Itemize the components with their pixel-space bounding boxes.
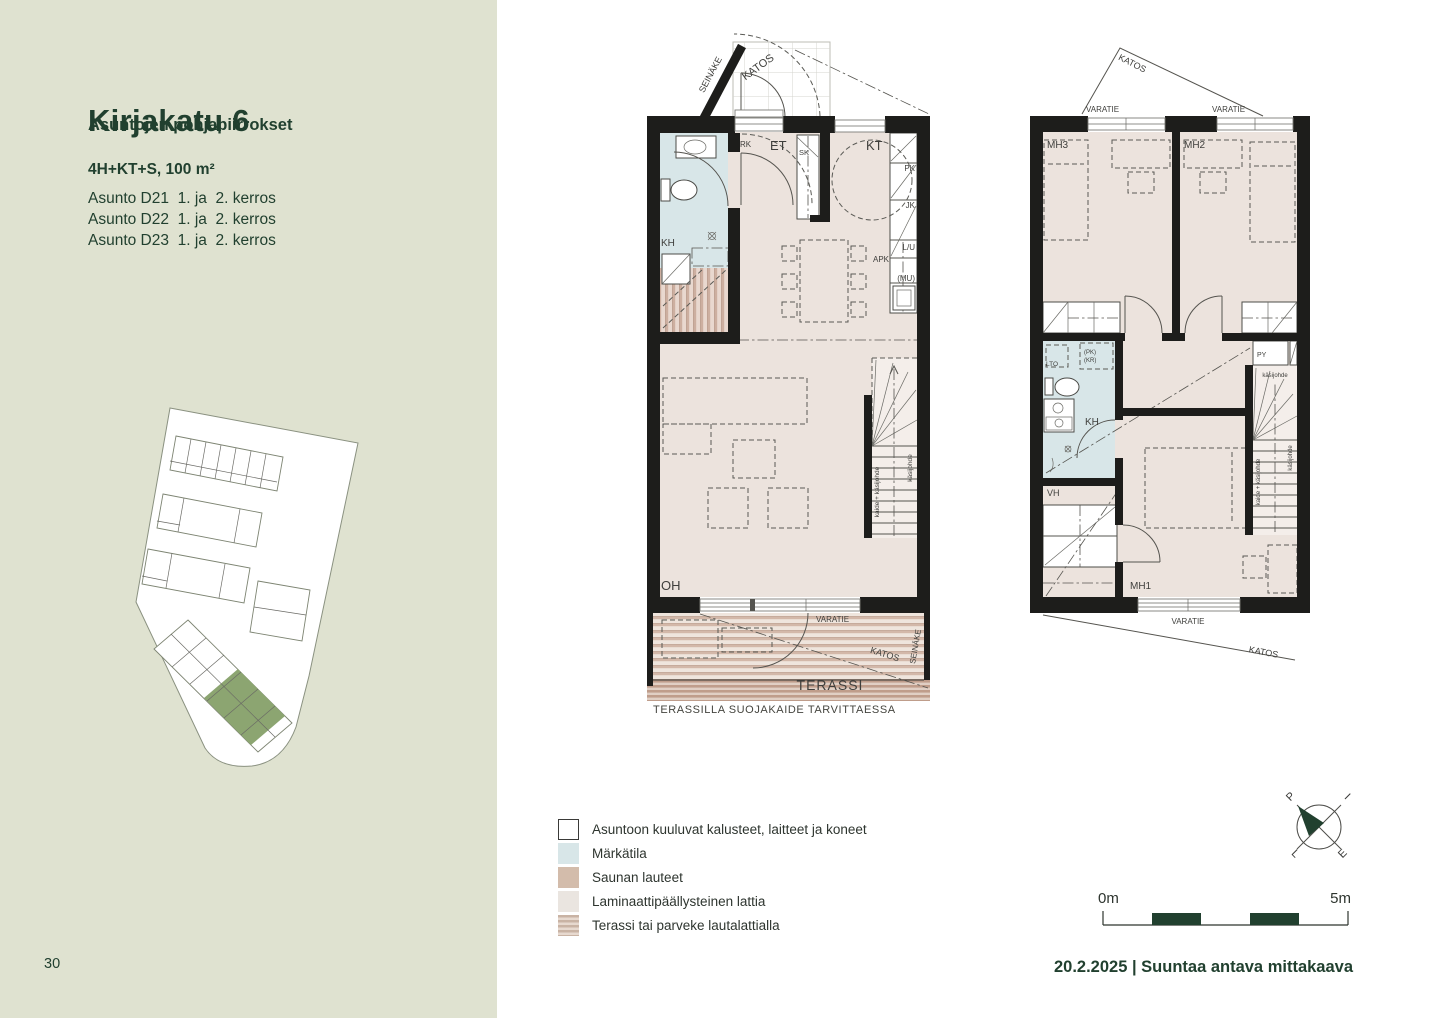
stove <box>893 286 915 310</box>
roof-outline: KATOS VARATIE VARATIE <box>1082 48 1263 116</box>
scale-end-label: 5m <box>1330 890 1351 907</box>
roof-outline-bottom: VARATIE KATOS <box>1043 615 1295 660</box>
varatie-label: VARATIE <box>816 615 849 624</box>
apartment-line: Asunto D23 1. ja 2. kerros <box>88 230 276 251</box>
legend-label: Asuntoon kuuluvat kalusteet, laitteet ja… <box>592 822 867 837</box>
terassi-label: TERASSI <box>797 677 864 693</box>
page-subtitle: Asuntojen pohjapiirrokset <box>88 116 292 135</box>
toilet-tank <box>661 179 670 201</box>
legend-swatch-wetroom <box>558 843 579 864</box>
scale-segment <box>1250 913 1299 925</box>
terrace-caption: TERASSILLA SUOJAKAIDE TARVITTAESSA <box>653 704 896 716</box>
pk-label: (PK) <box>1084 350 1096 356</box>
compass-east-label: I <box>1342 792 1353 803</box>
kasijohde-label: käsijohde <box>1262 373 1288 379</box>
apartment-list: Asunto D21 1. ja 2. kerros Asunto D22 1.… <box>88 188 276 251</box>
legend-item: Laminaattipäällysteinen lattia <box>558 889 867 913</box>
legend-label: Laminaattipäällysteinen lattia <box>592 894 765 909</box>
kh-label: KH <box>1085 417 1099 428</box>
kh-label: KH <box>661 238 675 249</box>
toilet-tank <box>1045 378 1053 395</box>
compass-rose: P I L E <box>1283 786 1355 864</box>
closet <box>1043 302 1120 333</box>
rk-label: RK <box>740 140 752 149</box>
site-plan-map <box>128 400 376 785</box>
apartment-line: Asunto D21 1. ja 2. kerros <box>88 188 276 209</box>
closet <box>1242 302 1297 333</box>
floorplan-second-floor: KATOS VARATIE VARATIE MH3 MH2 <box>1020 40 1320 668</box>
toilet <box>1055 378 1079 396</box>
legend-item: Terassi tai parveke lautalattialla <box>558 913 867 937</box>
legend-label: Saunan lauteet <box>592 870 683 885</box>
sink <box>676 136 716 158</box>
jk-label: JK <box>906 201 916 210</box>
legend: Asuntoon kuuluvat kalusteet, laitteet ja… <box>558 817 867 937</box>
oh-label: OH <box>661 578 681 593</box>
varatie-label: VARATIE <box>1212 105 1245 114</box>
lto-label: LTO <box>1046 361 1058 368</box>
apartment-line: Asunto D22 1. ja 2. kerros <box>88 209 276 230</box>
legend-item: Saunan lauteet <box>558 865 867 889</box>
scale-bar: 0m 5m <box>1093 888 1358 934</box>
legend-item: Asuntoon kuuluvat kalusteet, laitteet ja… <box>558 817 867 841</box>
sk-label: SK <box>799 148 809 157</box>
site-building-4 <box>250 581 310 641</box>
date-line: 20.2.2025 | Suuntaa antava mittakaava <box>1054 958 1353 977</box>
katos-label: KATOS <box>1248 644 1279 659</box>
terrace: VARATIE TERASSI KATOS SEINÄKE <box>647 613 930 701</box>
compass-north-label: P <box>1284 790 1298 804</box>
toilet <box>671 180 697 200</box>
py-label: PY <box>1257 352 1267 359</box>
floorplan-first-floor: SEINÄKE KATOS VARATIE TERASSI KATOS SEIN… <box>640 28 940 720</box>
mu-label: (MU) <box>897 274 915 283</box>
mh1-label: MH1 <box>1130 581 1152 592</box>
kr-label: (KR) <box>1084 358 1096 364</box>
legend-swatch-furniture <box>558 819 579 840</box>
legend-swatch-sauna <box>558 867 579 888</box>
kt-label: KT <box>866 138 883 153</box>
vh-label: VH <box>1047 488 1060 498</box>
varatie-label: VARATIE <box>1171 617 1204 626</box>
legend-swatch-terrace <box>558 915 579 936</box>
apartment-type: 4H+KT+S, 100 m² <box>88 161 215 179</box>
north-arrow <box>1298 806 1324 836</box>
kaide-label: kaide + käsijohde <box>1256 458 1262 505</box>
compass-west-label: L <box>1289 847 1302 860</box>
pk-label: PK <box>904 164 915 173</box>
kasijohde-label: käsijohde <box>1288 445 1294 471</box>
scale-segment <box>1152 913 1201 925</box>
apk-label: APK <box>873 255 890 264</box>
katos-label: KATOS <box>1117 52 1148 74</box>
brochure-page: Kirjakatu 6 Asuntojen pohjapiirrokset 4H… <box>0 0 1440 1018</box>
mh3-label: MH3 <box>1047 140 1069 151</box>
sidebar: Kirjakatu 6 Asuntojen pohjapiirrokset 4H… <box>0 0 497 1018</box>
legend-label: Märkätila <box>592 846 647 861</box>
compass-south-label: E <box>1336 847 1350 861</box>
varatie-label: VARATIE <box>1086 105 1119 114</box>
legend-swatch-laminate <box>558 891 579 912</box>
kaide-label: kaide + käsijohde <box>874 466 881 517</box>
terrace-slider <box>700 599 860 611</box>
mh2-label: MH2 <box>1184 140 1206 151</box>
lu-label: L/U <box>903 243 916 252</box>
et-label: ET <box>770 138 787 153</box>
entrance-canopy: SEINÄKE KATOS <box>697 34 929 118</box>
scale-start-label: 0m <box>1098 890 1119 907</box>
legend-item: Märkätila <box>558 841 867 865</box>
legend-label: Terassi tai parveke lautalattialla <box>592 918 780 933</box>
kasijohde-label: käsijohde <box>907 454 914 482</box>
page-number: 30 <box>44 956 60 972</box>
